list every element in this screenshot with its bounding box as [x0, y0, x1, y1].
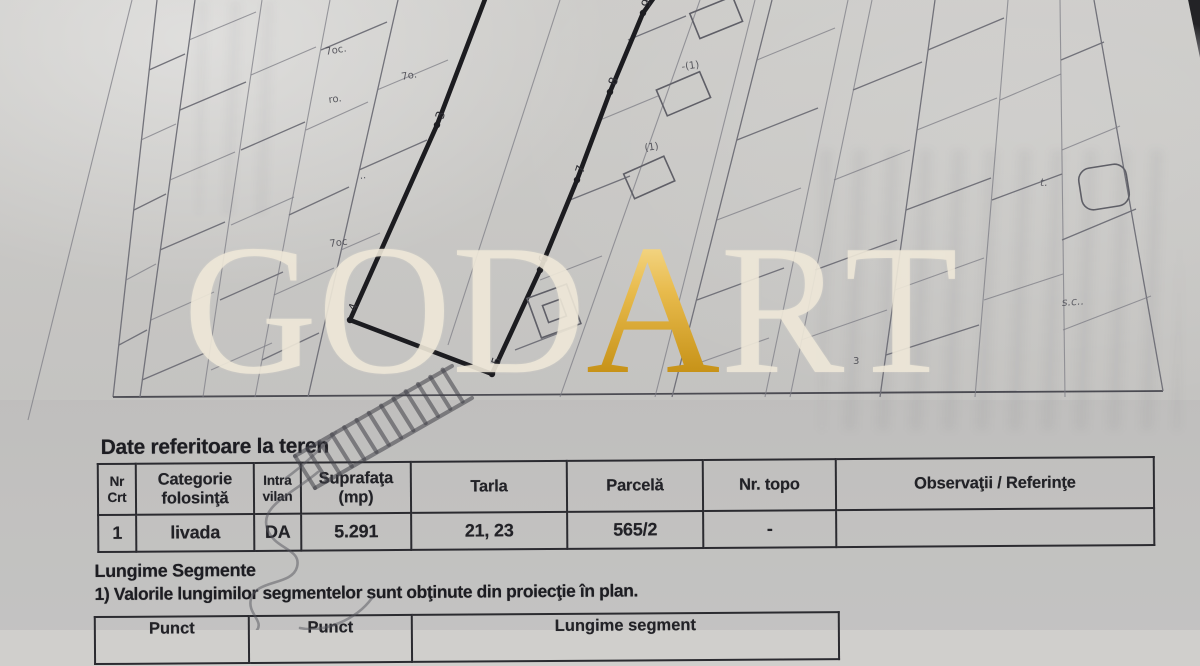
- document-body: Date referitoare la teren Nr Crt Categor…: [0, 0, 1200, 631]
- cell-nr-topo: -: [703, 510, 836, 548]
- segments-table: Punct Punct Lungime segment: [94, 611, 840, 665]
- teren-table-header-row: Nr Crt Categorie folosinţă Intra vilan S…: [98, 457, 1154, 515]
- cell-observatii: [836, 508, 1154, 547]
- header-tarla: Tarla: [411, 461, 567, 513]
- header-parcela: Parcelă: [567, 460, 703, 512]
- cell-parcela: 565/2: [567, 511, 703, 549]
- segments-table-header-row: Punct Punct Lungime segment: [95, 612, 839, 664]
- header-nr-crt: Nr Crt: [98, 464, 136, 515]
- teren-table: Nr Crt Categorie folosinţă Intra vilan S…: [97, 456, 1156, 553]
- header-punct-sfarsit: Punct: [249, 615, 412, 663]
- header-nr-topo: Nr. topo: [703, 459, 836, 511]
- cell-tarla: 21, 23: [411, 512, 567, 550]
- header-suprafata: Suprafaţa (mp): [301, 462, 411, 514]
- header-lungime-segment: Lungime segment: [412, 612, 839, 662]
- segments-heading: Lungime Segmente: [94, 560, 255, 582]
- teren-table-data-row: 1 livada DA 5.291 21, 23 565/2 -: [98, 508, 1154, 552]
- cell-intravilan: DA: [254, 514, 301, 551]
- segments-note: 1) Valorile lungimilor segmentelor sunt …: [95, 580, 638, 605]
- cell-categorie: livada: [136, 514, 254, 552]
- teren-section-title: Date referitoare la teren: [101, 434, 329, 460]
- header-intravilan: Intra vilan: [254, 463, 301, 514]
- header-observatii: Observaţii / Referinţe: [836, 457, 1154, 510]
- header-categorie: Categorie folosinţă: [136, 463, 254, 515]
- header-punct-inceput: Punct: [95, 616, 249, 664]
- cell-suprafata: 5.291: [301, 513, 411, 551]
- cell-nr-crt: 1: [98, 515, 136, 552]
